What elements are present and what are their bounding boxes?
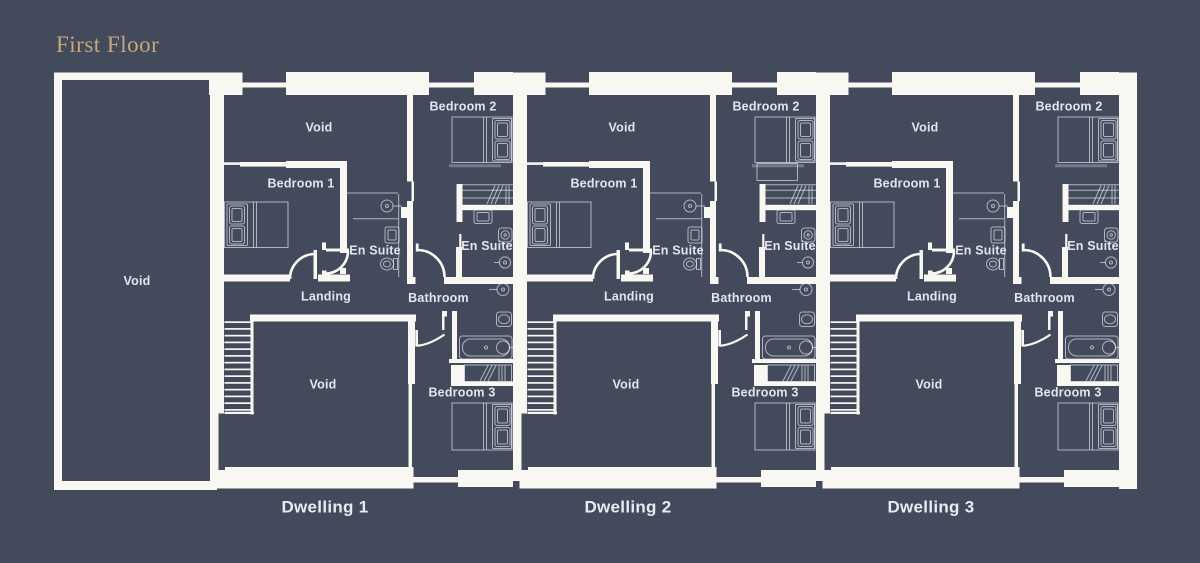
- svg-text:First Floor: First Floor: [56, 32, 159, 57]
- svg-text:Dwelling 1: Dwelling 1: [281, 498, 368, 517]
- svg-text:Dwelling 2: Dwelling 2: [584, 498, 671, 517]
- svg-text:Dwelling 3: Dwelling 3: [887, 498, 974, 517]
- svg-text:Void: Void: [124, 274, 151, 288]
